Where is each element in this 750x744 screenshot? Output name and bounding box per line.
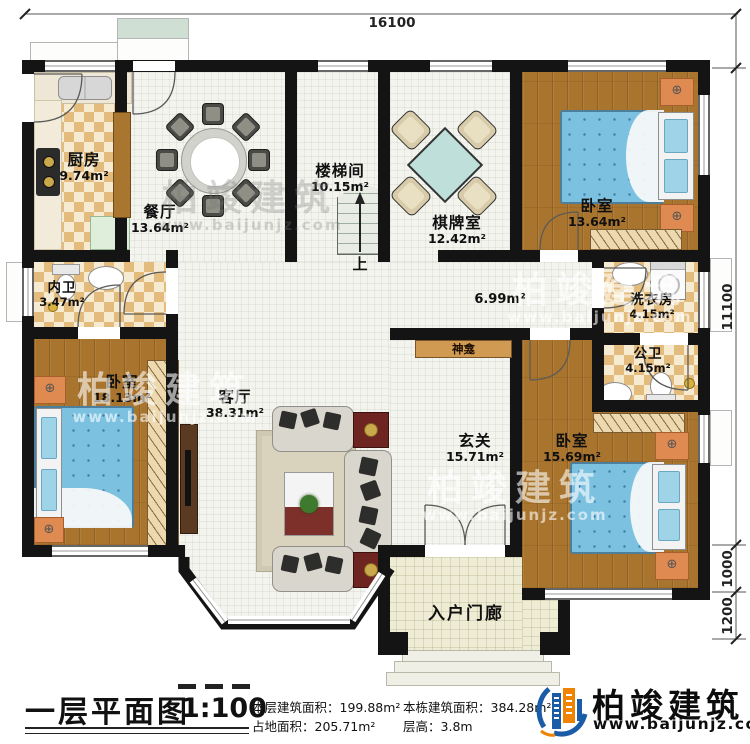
nightstand: ⊕ — [34, 376, 66, 404]
wardrobe — [590, 229, 682, 250]
stairs-up-label: 上 — [338, 256, 382, 273]
shrine-shelf: 神龛 — [415, 340, 512, 358]
room-label-laundry: 洗衣房 4.15m² — [602, 293, 702, 321]
nightstand: ⊕ — [655, 432, 689, 460]
room-label-living: 客厅 38.31m² — [185, 389, 285, 420]
wardrobe — [593, 413, 685, 433]
exterior-structure — [117, 38, 189, 62]
dining-chair — [248, 149, 270, 171]
sofa-cushion — [325, 556, 344, 575]
window — [568, 60, 666, 72]
dining-chair — [202, 103, 224, 125]
bed — [560, 110, 664, 204]
stat-floor-area: 本层建筑面积：199.88m² — [252, 697, 400, 716]
wall — [522, 588, 545, 600]
scale-bar — [178, 684, 250, 689]
floor-plan-canvas: ⊕ ⊕ ⊕ ⊕ 神龛 — [0, 0, 750, 744]
wall — [672, 588, 710, 600]
brand-website: www.baijunjz.com — [593, 715, 750, 733]
brand-logo-icon — [534, 680, 588, 738]
dining-table-top — [190, 137, 240, 187]
wall — [390, 545, 425, 557]
kitchen-sink-icon — [58, 76, 112, 100]
dimension-top: 16100 — [352, 15, 432, 31]
window — [318, 60, 368, 72]
room-label-ensuite: 内卫 3.47m² — [22, 281, 102, 309]
window — [52, 545, 148, 557]
dining-table — [181, 128, 247, 194]
bed — [570, 462, 664, 554]
wall — [604, 333, 640, 345]
pillow — [658, 471, 680, 503]
wall — [592, 400, 710, 412]
wall — [592, 250, 604, 268]
dining-chair — [156, 149, 178, 171]
stat-storey-height: 层高：3.8m — [403, 716, 473, 735]
pillow — [41, 417, 57, 459]
bed-headboard — [658, 112, 694, 200]
wall — [510, 250, 540, 262]
window — [545, 588, 672, 600]
window — [698, 95, 710, 175]
pillow — [658, 509, 680, 541]
pillow — [664, 159, 688, 193]
shrine-label: 神龛 — [452, 342, 475, 356]
wall — [115, 60, 127, 112]
porch-post — [540, 632, 570, 655]
room-label-bedroom-tr: 卧室 13.64m² — [547, 198, 647, 229]
side-table — [353, 412, 389, 448]
pillow — [664, 119, 688, 153]
dimension-right-porch: 1200 — [720, 571, 736, 661]
sofa-cushion — [358, 505, 378, 525]
exterior-structure — [117, 18, 189, 40]
nightstand: ⊕ — [660, 78, 694, 106]
tv-icon — [185, 450, 191, 506]
door-opening — [78, 327, 120, 339]
plan-title: 一层平面图 — [25, 687, 190, 731]
room-label-bedroom-left: 卧室 18.13m² — [72, 374, 172, 405]
plant-icon — [300, 495, 318, 513]
porch-post — [378, 632, 408, 655]
wall — [22, 250, 130, 262]
wall — [378, 60, 390, 262]
room-label-porch: 入户门廊 — [396, 605, 536, 624]
window-sill — [710, 410, 732, 466]
floor-drain-icon — [684, 378, 695, 389]
door-opening — [425, 545, 505, 557]
room-label-foyer: 玄关 15.71m² — [425, 433, 525, 464]
door-opening — [530, 328, 570, 340]
hallway-area-label: 6.99m² — [450, 293, 550, 308]
window — [698, 415, 710, 463]
dimension-right-main: 11100 — [720, 262, 736, 352]
sink-icon — [612, 262, 648, 286]
room-label-stair-hall: 楼梯间 10.15m² — [290, 163, 390, 194]
room-label-public-bath: 公卫 4.15m² — [598, 347, 698, 375]
room-label-kitchen: 厨房 9.74m² — [32, 152, 136, 183]
nightstand: ⊕ — [34, 517, 64, 543]
pillow — [41, 469, 57, 511]
wall — [390, 328, 530, 340]
wall — [285, 60, 297, 262]
room-label-bedroom-br: 卧室 15.69m² — [522, 433, 622, 464]
wall — [688, 333, 710, 345]
window-sill — [30, 42, 120, 62]
door-opening — [133, 61, 175, 71]
washer-panel — [651, 261, 685, 270]
room-label-chess: 棋牌室 12.42m² — [407, 215, 507, 246]
window — [45, 60, 115, 72]
room-label-dining: 餐厅 13.64m² — [110, 204, 210, 235]
bed-headboard — [36, 408, 62, 524]
stat-footprint-area: 占地面积：205.71m² — [252, 716, 375, 735]
door-opening — [640, 333, 688, 345]
stat-total-area: 本栋建筑面积：384.28m² — [403, 697, 551, 716]
door-opening — [166, 268, 178, 314]
nightstand: ⊕ — [655, 552, 689, 580]
sofa-cushion — [358, 456, 378, 476]
sofa-cushion — [323, 412, 342, 431]
bed-headboard — [652, 464, 686, 550]
door-opening — [22, 74, 34, 122]
nightstand: ⊕ — [660, 204, 694, 232]
sofa-cushion — [281, 555, 300, 574]
wall — [510, 60, 522, 262]
title-underline — [25, 727, 249, 734]
wall — [166, 314, 178, 557]
wall — [505, 545, 522, 557]
wall — [166, 250, 178, 268]
door-opening — [540, 250, 578, 262]
coffee-table — [284, 472, 334, 536]
window — [430, 60, 492, 72]
